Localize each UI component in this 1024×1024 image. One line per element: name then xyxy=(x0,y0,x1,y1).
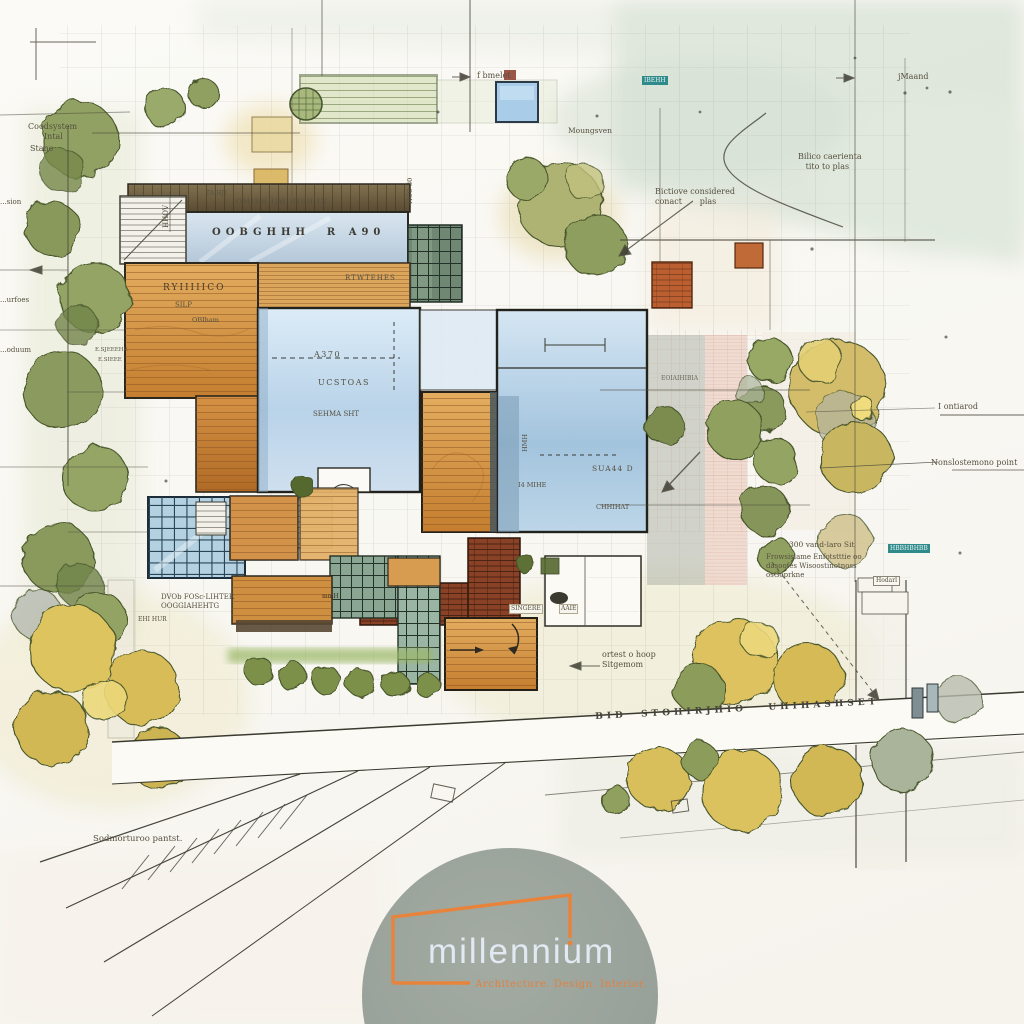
annotation-label: ortest o hoop Sitgemom xyxy=(602,650,656,671)
annotation-label: 300 vand-laro Sit xyxy=(789,540,854,550)
annotation-label: IBEHH xyxy=(642,76,668,85)
annotation-label: RTWTEHES xyxy=(345,274,396,283)
annotation-label: EHI HUR xyxy=(138,616,167,624)
annotation-label: UCSTOAS xyxy=(318,378,370,388)
annotation-label: Bictiove considered conact plas xyxy=(655,187,735,208)
site-plan-canvas: CoodsystemIntalStane...sion...urfoes...o… xyxy=(0,0,1024,1024)
annotation-label: RYIIIIICO xyxy=(163,283,225,295)
millennium-logo: millennium Architecture. Design. Interio… xyxy=(362,848,658,1024)
annotation-label: ...sion xyxy=(0,198,21,207)
annotation-label: Moungsven xyxy=(568,126,612,136)
annotation-label: Intal xyxy=(44,132,63,142)
annotation-label: Hodarl xyxy=(873,576,900,586)
blue-roof-center xyxy=(258,308,420,492)
annotation-label: EOIAIHIBIA xyxy=(661,375,698,383)
annotation-label: Nonslostemono point xyxy=(931,458,1017,468)
annotation-label: AAIE xyxy=(559,604,578,614)
annotation-label: ...urfoes xyxy=(0,296,29,305)
annotation-label: E.SIEEE xyxy=(98,357,122,364)
annotation-label: Bilico caerienta tito to plas xyxy=(798,152,862,173)
annotation-label: f bmelet xyxy=(477,71,510,81)
annotation-label: OMIEHHJW-HIEH IN xyxy=(236,198,328,207)
annotation-label: E.SJEEEHE xyxy=(95,347,128,354)
blue-roof-right xyxy=(497,310,647,532)
logo-brand: millennium xyxy=(428,932,615,972)
annotation-label: DVOb FOSc-LIHTER OOGGIAHEHTG xyxy=(161,593,234,611)
annotation-label: SINGERE xyxy=(509,604,543,614)
annotation-label: Sodmorturoo pantst. xyxy=(93,834,182,845)
annotation-label: HCO 30 xyxy=(406,178,414,204)
annotation-label: Stane xyxy=(30,144,53,154)
annotation-label: TAIHJI xyxy=(206,190,226,198)
annotation-label: ...oduum xyxy=(0,346,31,355)
annotation-label: jMaand xyxy=(898,72,928,82)
annotation-label: Coodsystem xyxy=(28,122,77,132)
annotation-label: SILP xyxy=(175,301,192,310)
annotation-label: SUA44 D xyxy=(592,464,634,474)
annotation-label: SEHMA SHT xyxy=(313,410,359,419)
annotation-label: HHOV xyxy=(162,205,171,228)
annotation-label: OOBGHHH R A90 xyxy=(212,226,385,239)
logo-tagline: Architecture. Design. Interior. xyxy=(458,979,664,990)
annotation-label: A370 xyxy=(314,350,341,360)
annotation-label: mmH xyxy=(322,593,339,601)
annotation-label: HMH xyxy=(521,434,529,452)
annotation-label: CHHIHAT xyxy=(596,503,629,511)
annotation-label: I4 MIHE xyxy=(518,481,546,489)
annotation-label: HBBHBHBB xyxy=(888,544,930,553)
annotation-label: Frowsislame Enfotstttie oo dasoofes Wiso… xyxy=(766,553,862,580)
annotation-label: OBIham xyxy=(192,316,219,324)
annotation-label: I ontiarod xyxy=(938,402,978,412)
